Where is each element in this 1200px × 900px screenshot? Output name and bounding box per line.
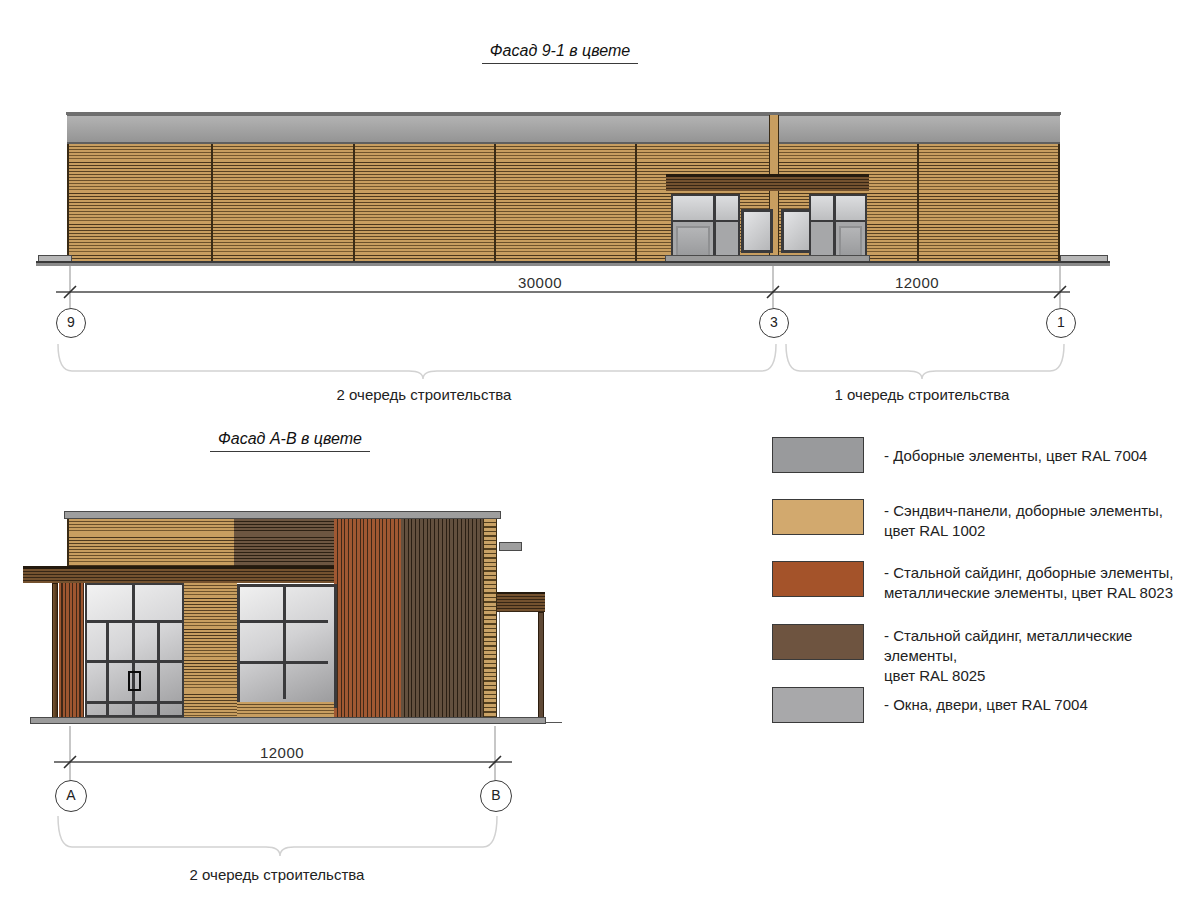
facadeAB-tan-corner-strip xyxy=(483,519,497,718)
canopy-post-right xyxy=(538,612,544,718)
legend-label-ral7004: - Доборные элементы, цвет RAL 7004 xyxy=(884,446,1200,466)
facadeAB-tan-panel xyxy=(184,583,237,718)
phase-label-2-top: 2 очередь строительства xyxy=(274,386,574,403)
panel-joint xyxy=(211,144,213,262)
phase-label-1-top: 1 очередь строительства xyxy=(772,386,1072,403)
entrance-door xyxy=(671,194,715,264)
facadeAB-darkbrown-siding-panel xyxy=(401,519,483,718)
panel-transom xyxy=(811,196,833,222)
facadeAB-entrance-glazing xyxy=(85,583,184,717)
legend-swatch-ral8023 xyxy=(772,561,864,597)
panel-joint xyxy=(494,144,496,262)
facadeAB-big-window xyxy=(237,584,337,708)
facade-9-1-title: Фасад 9-1 в цвете xyxy=(430,42,690,64)
facade-ab-title-text: Фасад А-В в цвете xyxy=(210,430,370,452)
ground-line-extension xyxy=(546,722,562,723)
mullion xyxy=(240,661,328,664)
mullion xyxy=(283,587,286,699)
door-transom xyxy=(836,196,865,222)
axis-marker-a: А xyxy=(55,780,87,812)
facade91-siding-wall xyxy=(67,144,1060,262)
small-window xyxy=(741,209,773,253)
mullion xyxy=(106,620,109,717)
axis-marker-9: 9 xyxy=(56,308,86,338)
facadeAB-coping xyxy=(64,511,501,519)
legend-label-ral8023: - Стальной сайдинг, доборные элементы, м… xyxy=(884,563,1200,603)
door-handle xyxy=(128,671,141,691)
facadeAB-gray-bracket xyxy=(499,542,522,551)
facadeAB-upper-tan-band xyxy=(67,519,234,566)
legend-swatch-windows xyxy=(772,687,864,723)
dim-12000-bottom: 12000 xyxy=(232,744,332,761)
axis-marker-3: 3 xyxy=(759,308,789,338)
facade-9-1-title-text: Фасад 9-1 в цвете xyxy=(482,42,638,64)
legend-swatch-ral1002 xyxy=(772,499,864,535)
legend-swatch-ral7004 xyxy=(772,437,864,473)
entrance-side-panel xyxy=(714,194,740,264)
wall-edge-line xyxy=(499,612,500,718)
entrance-door xyxy=(834,194,867,264)
legend-label-windows: - Окна, двери, цвет RAL 7004 xyxy=(884,695,1200,715)
entrance-side-panel xyxy=(809,194,835,264)
facade-ab-title: Фасад А-В в цвете xyxy=(160,430,420,452)
window-glass xyxy=(240,587,334,705)
facadeAB-orange-strip xyxy=(59,583,84,718)
axis-marker-b: В xyxy=(480,780,512,812)
small-window xyxy=(781,209,812,253)
facadeAB-side-canopy xyxy=(497,592,545,612)
panel-joint xyxy=(917,144,919,262)
facade91-entrance-canopy xyxy=(666,174,869,191)
dim-12000-top: 12000 xyxy=(867,274,967,291)
dim-30000: 30000 xyxy=(490,274,590,291)
drawing-sheet: Фасад 9-1 в цвете 30000 12000 9 3 1 2 оч… xyxy=(0,0,1200,900)
panel-joint xyxy=(353,144,355,262)
facadeAB-tan-under-window xyxy=(237,702,334,718)
mullion xyxy=(240,620,328,623)
legend-label-ral1002: - Сэндвич-панели, доборные элементы, цве… xyxy=(884,501,1200,541)
facadeAB-orange-siding-panel xyxy=(334,519,401,718)
facade91-parapet-band xyxy=(67,115,1060,144)
canopy-post-left xyxy=(52,583,58,718)
facadeAB-upper-brown-band xyxy=(234,519,334,566)
axis-marker-1: 1 xyxy=(1046,308,1076,338)
facade91-ground-line xyxy=(36,261,1110,266)
panel-transom xyxy=(716,196,738,222)
phase-label-2-bottom: 2 очередь строительства xyxy=(127,866,427,883)
mullion xyxy=(157,620,160,717)
legend-swatch-ral8025 xyxy=(772,624,864,660)
panel-joint xyxy=(635,144,637,262)
legend-label-ral8025: - Стальной сайдинг, металлические элемен… xyxy=(884,626,1200,686)
door-transom xyxy=(673,196,713,222)
facadeAB-entrance-canopy xyxy=(23,566,334,583)
mullion xyxy=(132,583,135,717)
facadeAB-base-plinth xyxy=(30,717,546,724)
